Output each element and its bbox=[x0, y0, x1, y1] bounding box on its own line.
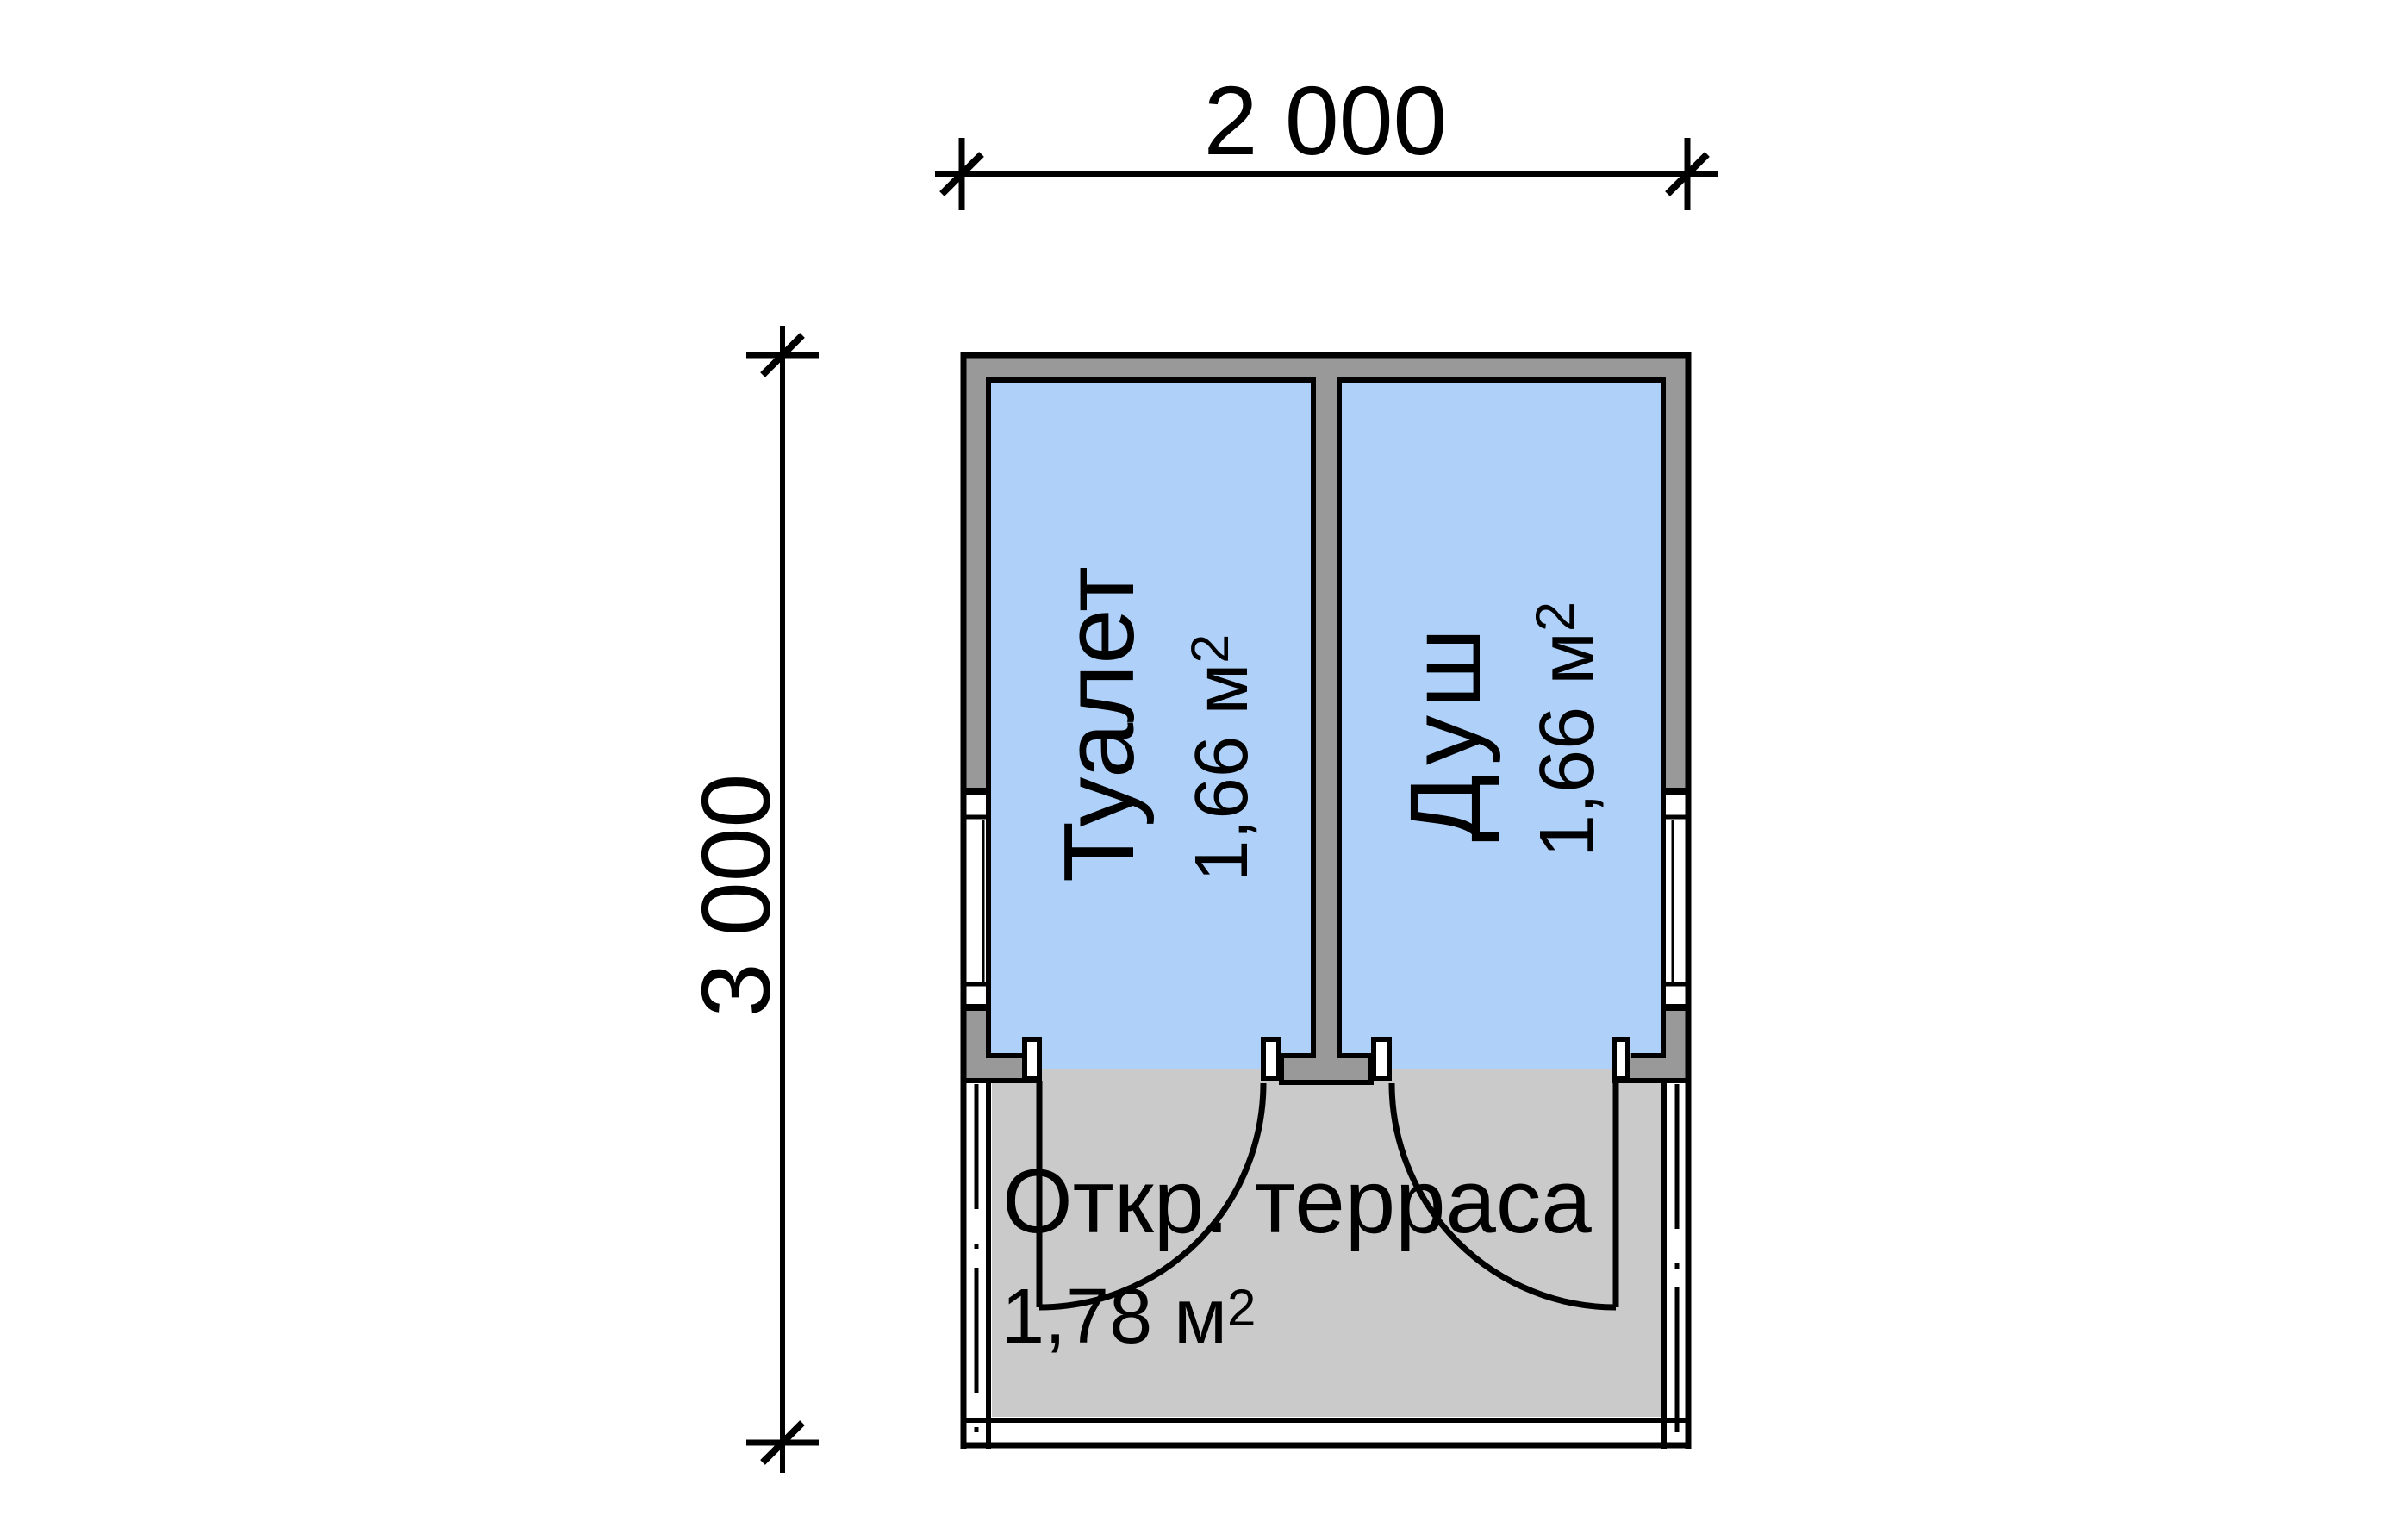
svg-text:1,66 м2: 1,66 м2 bbox=[1180, 634, 1263, 882]
svg-text:Туалет: Туалет bbox=[1043, 566, 1155, 882]
svg-text:1,66 м2: 1,66 м2 bbox=[1524, 602, 1611, 857]
svg-text:3 000: 3 000 bbox=[682, 774, 790, 1018]
svg-text:Душ: Душ bbox=[1389, 621, 1501, 842]
svg-text:1,78 м2: 1,78 м2 bbox=[1001, 1274, 1256, 1360]
svg-text:2 000: 2 000 bbox=[1204, 66, 1448, 175]
svg-text:Откр. терраса: Откр. терраса bbox=[1002, 1151, 1592, 1252]
